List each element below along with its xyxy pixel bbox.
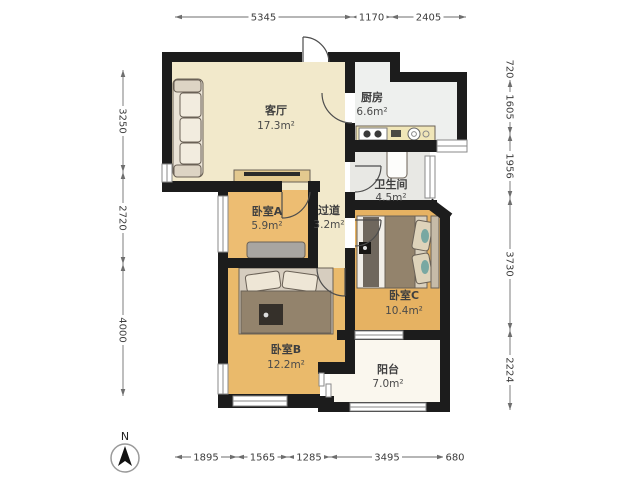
bathroom-label: 卫生间 (375, 177, 408, 191)
dim-arrow (121, 165, 126, 172)
kitchen-area: 6.6m² (356, 106, 387, 118)
dim-label: 1170 (359, 13, 384, 24)
balcony-area: 7.0m² (372, 378, 403, 390)
corridor-area: 3.2m² (313, 219, 344, 231)
stove-burner (374, 130, 381, 137)
dim-arrow (459, 15, 466, 20)
dim-arrow (175, 15, 182, 20)
window-balcony-bottom (350, 403, 426, 411)
balcony-label: 阳台 (377, 362, 399, 376)
bedroom-c-bed (357, 216, 439, 288)
bed-end-bench (259, 304, 283, 325)
dim-label: 2224 (504, 357, 515, 382)
dim-arrow (508, 127, 513, 134)
dim-left: 325027204000 (117, 70, 130, 396)
sofa (173, 79, 203, 177)
dim-arrow (121, 257, 126, 264)
bedroom-a-area: 5.9m² (251, 220, 282, 232)
dim-arrow (230, 455, 237, 460)
dim-label: 1605 (504, 94, 515, 119)
floor-plan-svg: 客厅 17.3m² 厨房 6.6m² 卫生间 4.5m² 卧室A 5.9m² 过… (0, 0, 640, 480)
window-kitchen-bottom-right (437, 140, 467, 152)
balcony-sliding-opening (319, 373, 331, 397)
dim-arrow (508, 323, 513, 330)
dim-arrow (121, 172, 126, 179)
living-room-label: 客厅 (264, 103, 287, 117)
kitchen-sink (408, 128, 420, 140)
kitchen-counter (356, 126, 435, 142)
window-bedroom-b-bottom (233, 396, 287, 406)
dim-bottom: 1895156512853495680 (175, 451, 467, 464)
dim-arrow (345, 15, 352, 20)
bathroom-area: 4.5m² (375, 192, 406, 204)
dim-arrow (323, 455, 330, 460)
dim-label: 680 (445, 453, 464, 464)
dim-top: 534511702405 (175, 11, 466, 24)
dim-arrow (330, 455, 337, 460)
dim-label: 1565 (250, 453, 275, 464)
dim-label: 2720 (117, 205, 128, 230)
dim-label: 1285 (296, 453, 321, 464)
dim-arrow (508, 80, 513, 87)
dim-label: 3495 (374, 453, 399, 464)
dim-arrow (237, 455, 244, 460)
dim-arrow (121, 264, 126, 271)
dim-label: 3730 (504, 251, 515, 276)
bedroom-b-label: 卧室B (271, 342, 301, 356)
bedroom-c-label: 卧室C (389, 288, 419, 302)
bedroom-c-area: 10.4m² (385, 305, 423, 317)
bedroom-a-dresser (247, 242, 305, 258)
window-bathroom-right (425, 156, 435, 198)
bedroom-a-label: 卧室A (252, 204, 283, 218)
dim-arrow (508, 198, 513, 205)
window-bedroom-b-left (218, 364, 228, 394)
kitchen-label: 厨房 (361, 90, 383, 104)
window-bedroom-a-left (218, 196, 228, 252)
dim-label: 4000 (117, 317, 128, 342)
window-living-left (162, 164, 172, 182)
tv-console (234, 170, 310, 182)
dim-arrow (508, 330, 513, 337)
dim-label: 5345 (251, 13, 276, 24)
bedroom-b-area: 12.2m² (267, 359, 305, 371)
stove-burner (363, 130, 370, 137)
dim-arrow (281, 455, 288, 460)
dim-arrow (437, 455, 444, 460)
dim-label: 1956 (504, 153, 515, 178)
dim-label: 1895 (193, 453, 218, 464)
dim-label: 3250 (117, 108, 128, 133)
dim-arrow (121, 70, 126, 77)
dim-right: 7201605195637302224 (504, 57, 517, 410)
corridor-label: 过道 (318, 203, 340, 217)
dim-arrow (288, 455, 295, 460)
entrance-door (303, 37, 329, 62)
compass-n-label: N (121, 430, 129, 443)
window-balcony-top (355, 331, 403, 339)
dim-arrow (391, 15, 398, 20)
dim-arrow (121, 389, 126, 396)
dim-arrow (508, 191, 513, 198)
dim-arrow (508, 134, 513, 141)
dim-label: 2405 (416, 13, 441, 24)
dim-label: 720 (504, 59, 515, 78)
dim-arrow (175, 455, 182, 460)
living-room-area: 17.3m² (257, 120, 295, 132)
compass: N (111, 430, 139, 472)
floor-plan: 客厅 17.3m² 厨房 6.6m² 卫生间 4.5m² 卧室A 5.9m² 过… (0, 0, 640, 480)
dim-arrow (508, 403, 513, 410)
